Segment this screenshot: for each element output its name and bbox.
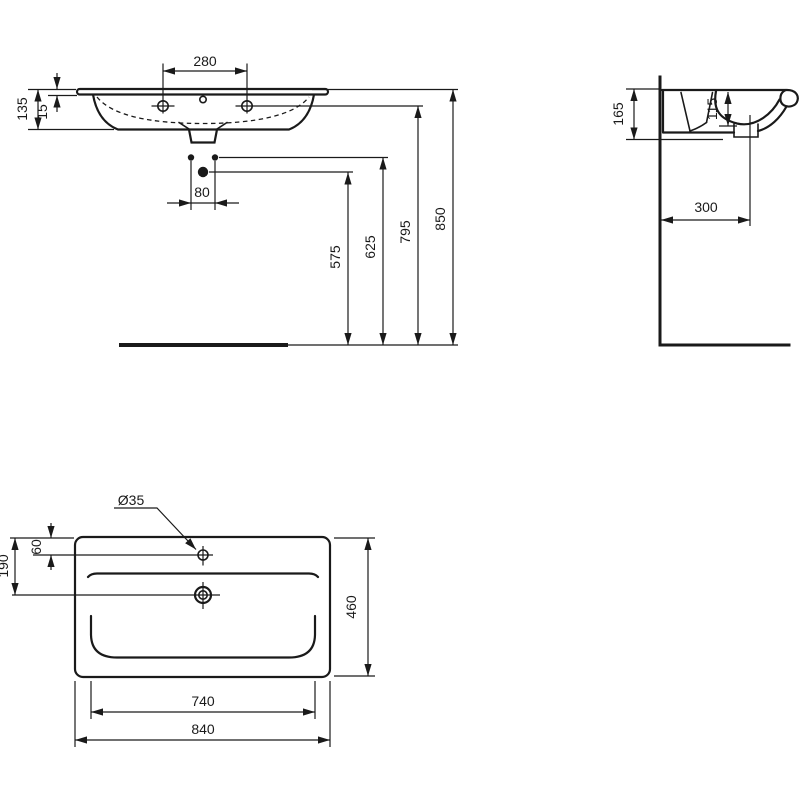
front-basin-outer-wall [93, 95, 314, 130]
front-fixing-hole-right [212, 154, 218, 160]
dim-740-label: 740 [191, 693, 215, 709]
dim-60-label: 60 [28, 539, 44, 555]
front-overflow-hole [200, 96, 206, 102]
side-inner-bowl-profile [715, 91, 779, 124]
plan-inner-bowl-outline [91, 616, 315, 658]
leader-tap-hole-diameter [114, 508, 196, 550]
front-view: 280 135 15 80 575 625 795 850 [14, 53, 458, 345]
side-tap-recess-bottom [690, 123, 707, 132]
dim-80-label: 80 [194, 184, 210, 200]
dim-300-label: 300 [694, 199, 718, 215]
dim-795-label: 795 [397, 220, 413, 244]
front-supply-point [198, 167, 208, 177]
washbasin-technical-drawing: 280 135 15 80 575 625 795 850 [0, 0, 800, 800]
dim-840-label: 840 [191, 721, 215, 737]
front-drain-outlet [189, 130, 217, 143]
plan-view: Ø35 60 190 460 740 840 [0, 492, 375, 747]
drawing-canvas: 280 135 15 80 575 625 795 850 [0, 0, 800, 800]
dim-850-label: 850 [432, 207, 448, 231]
dim-115-label: 115 [704, 98, 720, 121]
side-drain-box [734, 124, 758, 137]
dim-190-label: 190 [0, 554, 11, 578]
side-view: 165 115 300 [610, 77, 798, 345]
dim-135-label: 135 [14, 97, 30, 121]
dim-15-label: 15 [34, 104, 50, 120]
dim-460-label: 460 [343, 595, 359, 619]
plan-front-edge-line [88, 574, 318, 578]
front-fixing-hole-left [188, 154, 194, 160]
front-basin-inner-bowl-dashed [97, 97, 309, 124]
side-front-rim-lip [780, 90, 797, 107]
label-tap-hole-diameter: Ø35 [118, 492, 145, 508]
dim-165-label: 165 [610, 102, 626, 126]
front-basin-rim [77, 89, 328, 95]
dim-575-label: 575 [327, 245, 343, 269]
side-tap-recess-left [681, 93, 690, 132]
dim-280-label: 280 [193, 53, 217, 69]
dim-625-label: 625 [362, 235, 378, 259]
